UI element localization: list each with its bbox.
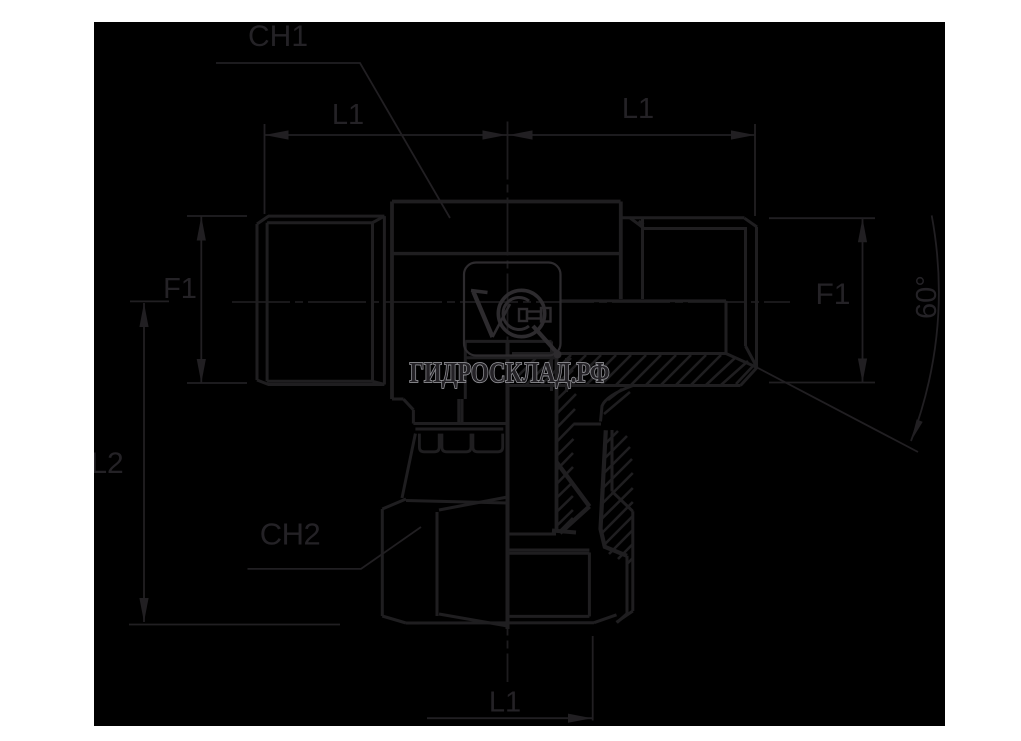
svg-text:CH2: CH2 xyxy=(260,517,321,552)
svg-text:60°: 60° xyxy=(911,275,943,319)
svg-text:L1: L1 xyxy=(622,93,654,125)
svg-text:L2: L2 xyxy=(94,447,124,480)
svg-text:ГИДРОСКЛАД.РФ: ГИДРОСКЛАД.РФ xyxy=(410,358,610,389)
svg-text:CH1: CH1 xyxy=(248,22,308,53)
svg-text:L1: L1 xyxy=(332,99,364,131)
svg-text:F1: F1 xyxy=(163,273,197,305)
svg-text:L1: L1 xyxy=(489,687,521,719)
svg-text:F1: F1 xyxy=(815,278,850,311)
